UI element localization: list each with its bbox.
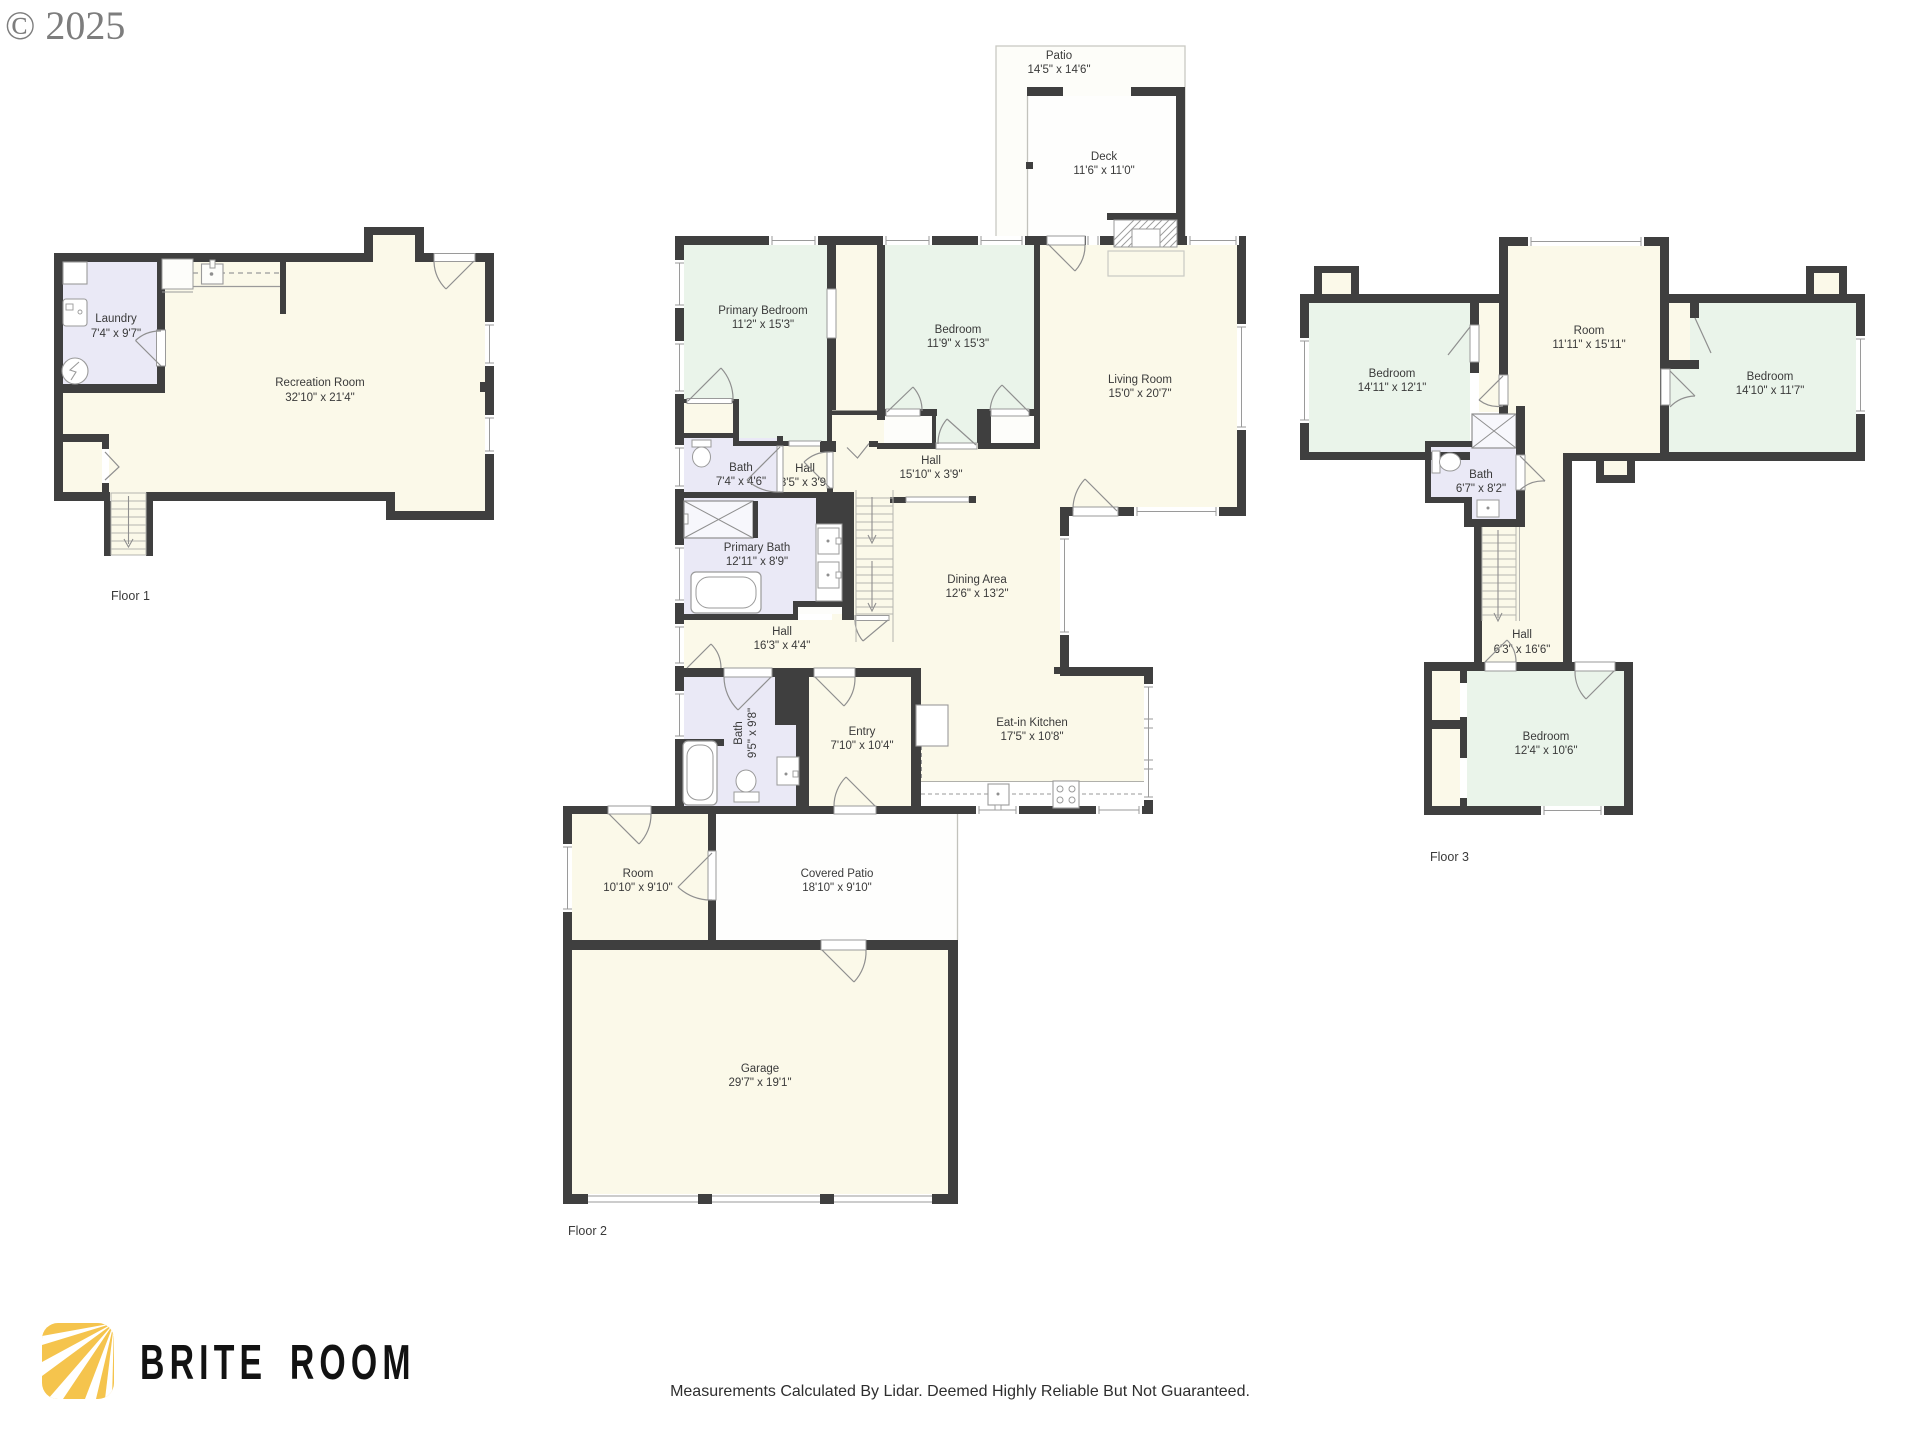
svg-text:© 2025: © 2025	[5, 3, 125, 48]
svg-text:17'5" x 10'8": 17'5" x 10'8"	[1000, 731, 1063, 743]
svg-text:Patio: Patio	[1046, 50, 1072, 62]
svg-text:7'4" x 4'6": 7'4" x 4'6"	[716, 476, 766, 488]
svg-text:Hall: Hall	[772, 626, 792, 638]
svg-text:Entry: Entry	[849, 726, 876, 738]
svg-text:29'7" x 19'1": 29'7" x 19'1"	[728, 1077, 791, 1089]
svg-text:32'10" x 21'4": 32'10" x 21'4"	[285, 392, 354, 404]
svg-text:Bath: Bath	[733, 721, 745, 745]
svg-text:Bedroom: Bedroom	[1523, 731, 1570, 743]
svg-text:Hall: Hall	[921, 455, 941, 467]
svg-text:Recreation Room: Recreation Room	[275, 377, 364, 389]
svg-text:12'11" x 8'9": 12'11" x 8'9"	[726, 556, 788, 568]
svg-text:9'5" x 9'8": 9'5" x 9'8"	[747, 708, 759, 758]
svg-text:Room: Room	[623, 868, 654, 880]
svg-text:14'5" x 14'6": 14'5" x 14'6"	[1027, 64, 1090, 76]
svg-text:Bedroom: Bedroom	[1369, 368, 1416, 380]
svg-text:10'10" x 9'10": 10'10" x 9'10"	[603, 882, 672, 894]
svg-text:11'9" x 15'3": 11'9" x 15'3"	[927, 338, 989, 350]
svg-text:Dining Area: Dining Area	[947, 574, 1007, 586]
svg-text:14'10" x 11'7": 14'10" x 11'7"	[1736, 385, 1805, 397]
svg-text:Floor 3: Floor 3	[1430, 850, 1469, 864]
svg-text:11'6" x 11'0": 11'6" x 11'0"	[1073, 165, 1134, 177]
svg-text:Laundry: Laundry	[95, 313, 137, 325]
svg-text:7'4" x 9'7": 7'4" x 9'7"	[91, 328, 141, 340]
svg-text:Bedroom: Bedroom	[1747, 371, 1794, 383]
svg-text:7'10" x 10'4": 7'10" x 10'4"	[830, 740, 893, 752]
svg-text:12'4" x 10'6": 12'4" x 10'6"	[1514, 745, 1577, 757]
svg-text:11'11" x 15'11": 11'11" x 15'11"	[1552, 339, 1625, 351]
svg-text:Eat-in Kitchen: Eat-in Kitchen	[996, 717, 1068, 729]
svg-text:3'5" x 3'9": 3'5" x 3'9"	[780, 477, 830, 489]
svg-text:16'3" x 4'4": 16'3" x 4'4"	[754, 640, 811, 652]
svg-text:Living Room: Living Room	[1108, 374, 1172, 386]
svg-text:Room: Room	[1574, 325, 1605, 337]
svg-text:15'0" x 20'7": 15'0" x 20'7"	[1108, 388, 1171, 400]
svg-text:6'3" x 16'6": 6'3" x 16'6"	[1494, 644, 1551, 656]
svg-text:Floor 1: Floor 1	[111, 589, 150, 603]
svg-text:Hall: Hall	[1512, 629, 1532, 641]
svg-text:Bath: Bath	[729, 462, 753, 474]
svg-text:Bath: Bath	[1469, 469, 1493, 481]
svg-text:15'10" x 3'9": 15'10" x 3'9"	[899, 469, 962, 481]
svg-text:Garage: Garage	[741, 1063, 779, 1075]
svg-text:Covered Patio: Covered Patio	[801, 868, 874, 880]
svg-text:12'6" x 13'2": 12'6" x 13'2"	[945, 588, 1008, 600]
svg-text:Primary Bath: Primary Bath	[724, 542, 790, 554]
svg-text:18'10" x 9'10": 18'10" x 9'10"	[802, 882, 871, 894]
svg-text:6'7" x 8'2": 6'7" x 8'2"	[1456, 483, 1506, 495]
svg-text:BRITE ROOM: BRITE ROOM	[140, 1335, 416, 1390]
svg-text:14'11" x 12'1": 14'11" x 12'1"	[1358, 382, 1427, 394]
svg-text:Bedroom: Bedroom	[935, 324, 982, 336]
svg-text:Primary Bedroom: Primary Bedroom	[718, 305, 807, 317]
svg-text:Hall: Hall	[795, 463, 815, 475]
svg-text:Measurements Calculated By Lid: Measurements Calculated By Lidar. Deemed…	[670, 1383, 1250, 1400]
svg-text:11'2" x 15'3": 11'2" x 15'3"	[732, 319, 794, 331]
svg-text:Floor 2: Floor 2	[568, 1224, 607, 1238]
svg-text:Deck: Deck	[1091, 151, 1117, 163]
